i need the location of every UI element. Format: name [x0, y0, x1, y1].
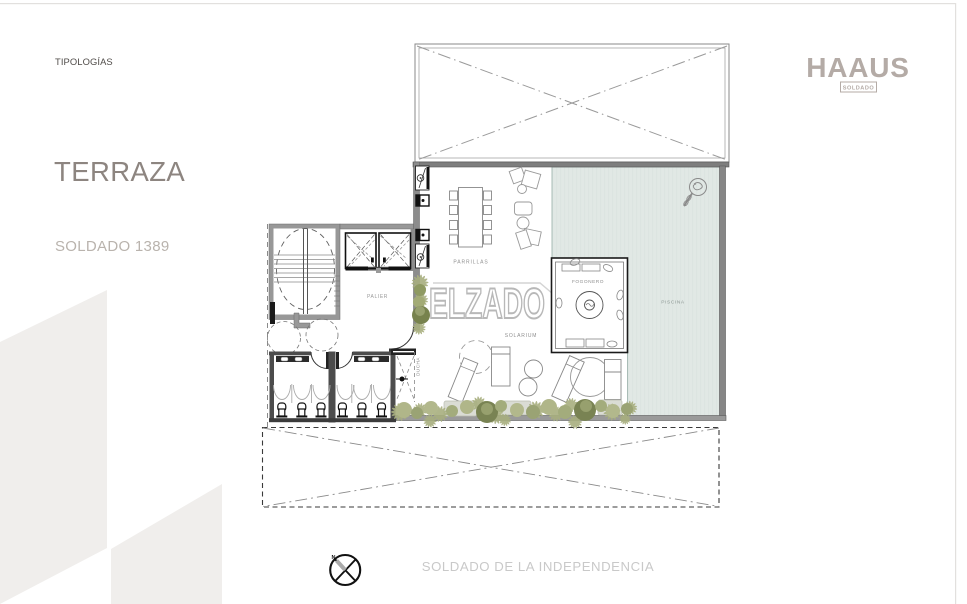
- svg-text:TERRAZA: TERRAZA: [54, 156, 185, 187]
- svg-text:SOLDADO: SOLDADO: [843, 86, 875, 92]
- svg-text:FOGONERO: FOGONERO: [572, 279, 604, 285]
- svg-text:DUCHA: DUCHA: [416, 357, 421, 376]
- svg-text:HAAUS: HAAUS: [806, 52, 910, 83]
- svg-text:TIPOLOGÍAS: TIPOLOGÍAS: [55, 56, 113, 67]
- svg-text:PALIER: PALIER: [367, 294, 388, 300]
- svg-text:PARRILLAS: PARRILLAS: [453, 260, 488, 266]
- svg-text:ELZADO: ELZADO: [429, 280, 545, 328]
- svg-text:SOLDADO DE LA INDEPENDENCIA: SOLDADO DE LA INDEPENDENCIA: [422, 559, 655, 574]
- svg-text:PISCINA: PISCINA: [661, 300, 685, 306]
- svg-text:N: N: [332, 555, 336, 561]
- svg-text:SOLARIUM: SOLARIUM: [505, 333, 538, 339]
- svg-text:SOLDADO 1389: SOLDADO 1389: [55, 238, 170, 255]
